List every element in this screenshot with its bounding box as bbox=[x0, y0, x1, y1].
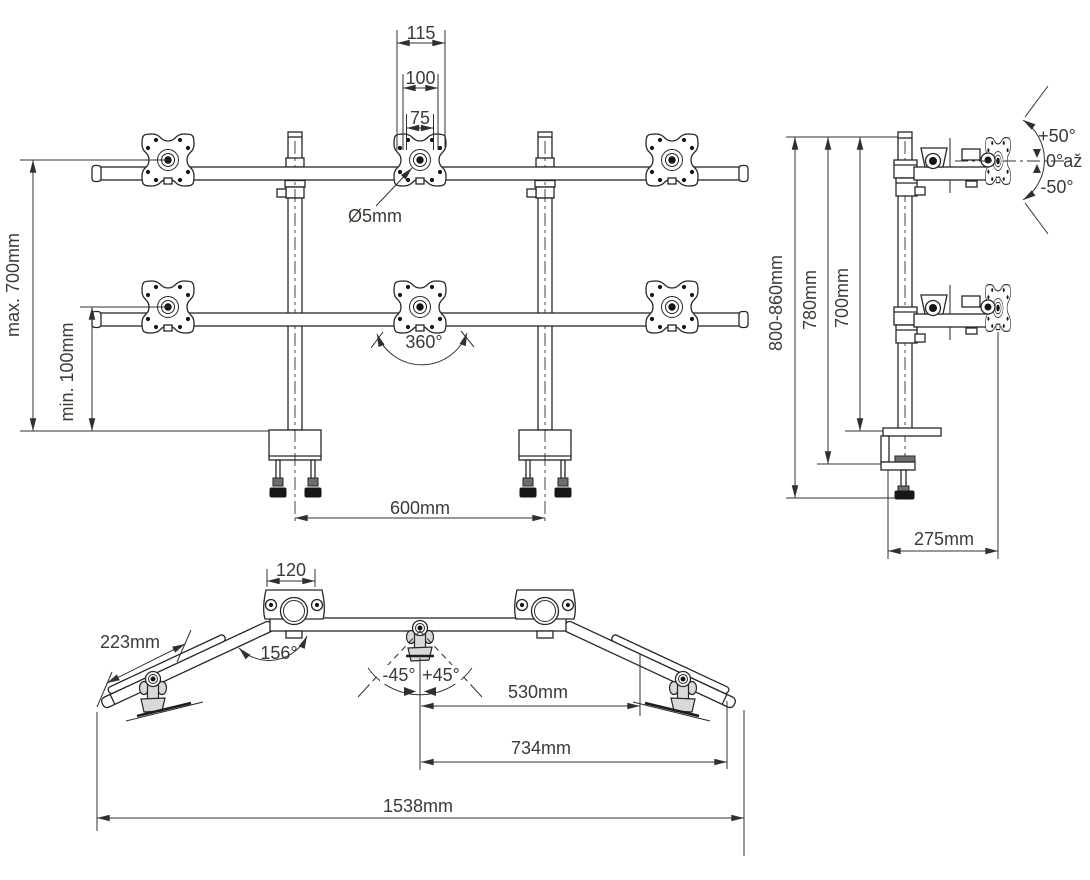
vesa-plate bbox=[646, 281, 698, 333]
technical-drawing-canvas: 115 100 75 Ø5mm max. 700mm min. 100mm bbox=[0, 0, 1090, 880]
dim-label-156: 156° bbox=[260, 643, 297, 663]
vesa-plate bbox=[394, 281, 446, 333]
dim-label-max-height: max. 700mm bbox=[3, 233, 23, 337]
dim-label-115: 115 bbox=[407, 23, 436, 43]
dim-label-100: 100 bbox=[405, 68, 435, 88]
dim-label-120: 120 bbox=[276, 560, 306, 580]
dim-label-1538: 1538mm bbox=[383, 796, 453, 816]
dim-label-780: 780mm bbox=[800, 270, 820, 330]
pole-left bbox=[269, 132, 321, 524]
side-view: +50° 0°až -50° 800-860mm 780mm 700mm bbox=[766, 86, 1082, 559]
dim-label-734: 734mm bbox=[511, 738, 571, 758]
side-arm-left bbox=[97, 614, 274, 709]
annotation-rotation-360: 360° bbox=[371, 331, 474, 365]
front-view: 115 100 75 Ø5mm max. 700mm min. 100mm bbox=[3, 23, 748, 524]
dim-label-hole-diameter: Ø5mm bbox=[348, 206, 402, 226]
dimension-clamp-120: 120 bbox=[267, 560, 315, 587]
dim-label-tilt-up: +50° bbox=[1038, 126, 1076, 146]
monitor-mount-drawing: 115 100 75 Ø5mm max. 700mm min. 100mm bbox=[0, 0, 1090, 880]
dim-label-swivel-right: +45° bbox=[422, 665, 460, 685]
dim-label-depth: 275mm bbox=[914, 529, 974, 549]
vesa-plate bbox=[646, 134, 698, 186]
dim-label-530: 530mm bbox=[508, 682, 568, 702]
dimension-pole-spacing: 600mm bbox=[295, 498, 545, 518]
dim-label-pole-spacing: 600mm bbox=[390, 498, 450, 518]
dim-label-75: 75 bbox=[410, 108, 430, 128]
dim-label-tilt-zero: 0°až bbox=[1046, 151, 1082, 171]
dim-label-223: 223mm bbox=[100, 632, 160, 652]
dim-label-swivel-left: -45° bbox=[382, 665, 415, 685]
dim-label-overall-height: 800-860mm bbox=[766, 255, 786, 351]
dim-label-700: 700mm bbox=[832, 268, 852, 328]
dimension-heights: 800-860mm 780mm 700mm bbox=[766, 137, 898, 498]
dim-label-rotation: 360° bbox=[405, 332, 442, 352]
dim-label-min-height: min. 100mm bbox=[57, 322, 77, 421]
pole-right bbox=[519, 132, 571, 524]
dim-label-tilt-down: -50° bbox=[1040, 177, 1073, 197]
top-view: 120 223mm 156° -45° +45° bbox=[97, 560, 744, 856]
side-arm-right bbox=[563, 614, 740, 709]
